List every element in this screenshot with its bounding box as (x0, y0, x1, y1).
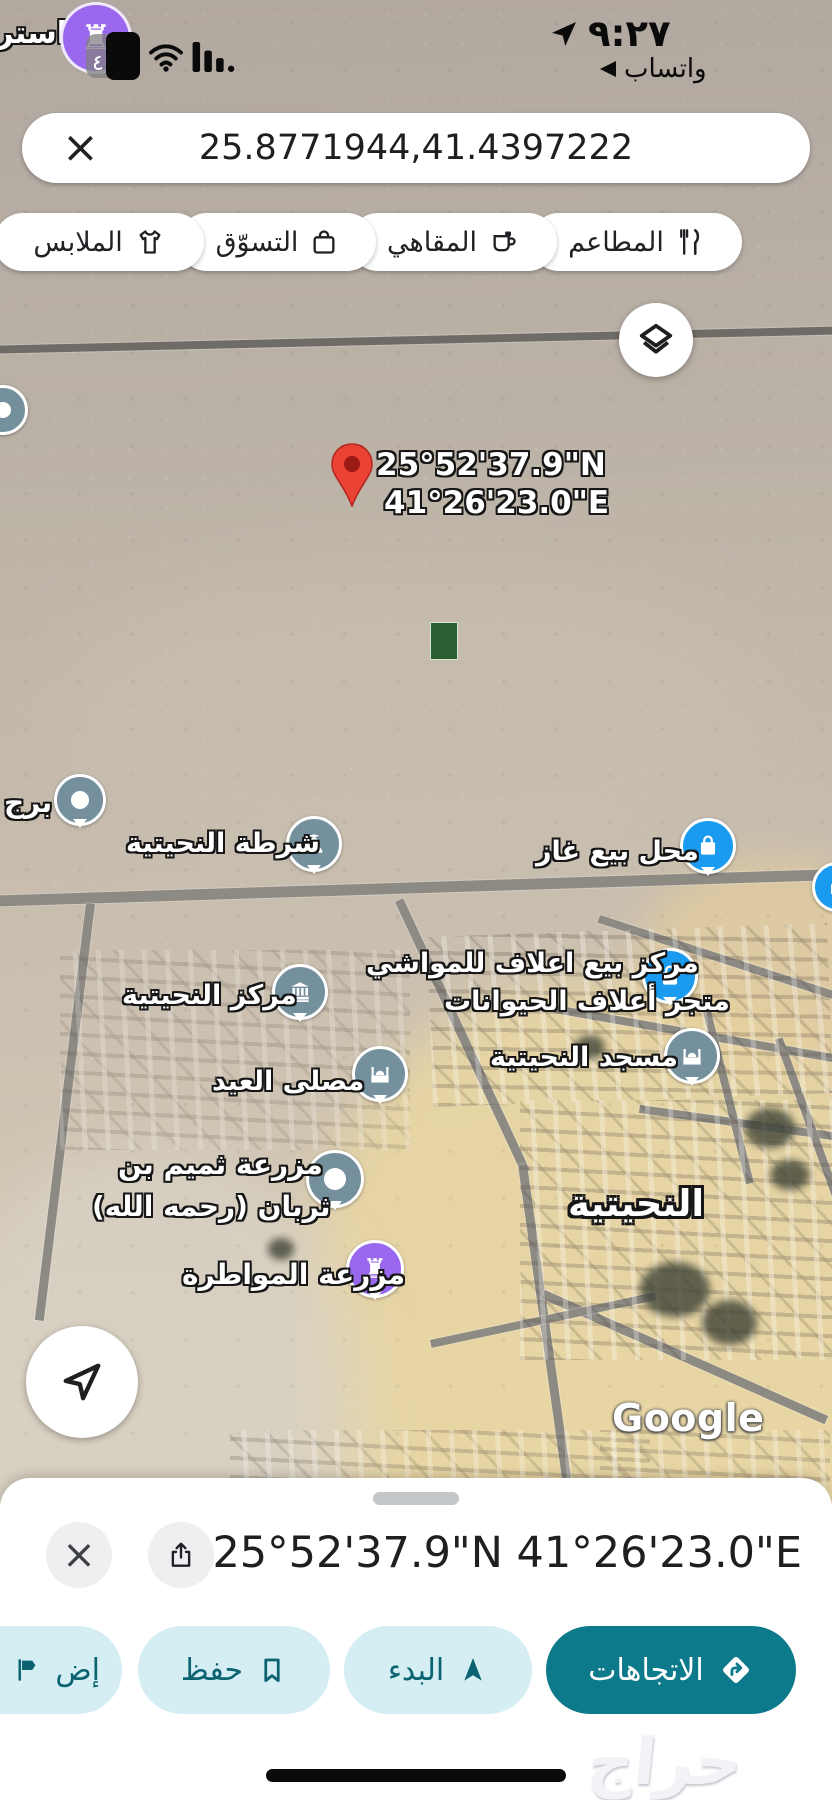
google-maps-screen: استرا ♜ ٤ ٩:٢٧ واتساب × 25.8771944,41.43… (0, 0, 832, 1800)
save-button[interactable]: حفظ (138, 1626, 330, 1714)
close-sheet-button[interactable]: × (46, 1522, 112, 1588)
dropped-pin[interactable] (328, 442, 376, 510)
tower-marker[interactable] (54, 774, 106, 826)
chip-label: التسوّق (216, 227, 299, 258)
my-location-button[interactable] (26, 1326, 138, 1438)
search-bar[interactable]: × 25.8771944,41.4397222 (22, 113, 810, 183)
google-logo: Google (612, 1396, 764, 1440)
restaurants-icon (676, 228, 704, 256)
poi-label-muwatara[interactable]: مزرعة المواطرة (182, 1258, 405, 1291)
cafes-icon (489, 228, 519, 256)
poi-label-eid-musalla[interactable]: مصلى العيد (212, 1066, 364, 1097)
add-label-button[interactable]: إض (0, 1626, 122, 1714)
chip-clothing[interactable]: الملابس (0, 213, 204, 271)
clothing-icon (135, 228, 165, 256)
poi-label-tower[interactable]: برج (4, 786, 52, 819)
map-layers-button[interactable] (619, 303, 693, 377)
share-icon (166, 1540, 196, 1570)
notification-ticker[interactable]: واتساب (600, 54, 707, 84)
bookmark-icon (257, 1655, 287, 1685)
vegetation (268, 1238, 294, 1260)
mosque-icon (679, 1043, 705, 1069)
search-query[interactable]: 25.8771944,41.4397222 (22, 128, 810, 168)
close-icon: × (62, 1535, 96, 1575)
poi-label-town-center[interactable]: مركز النحيتية (122, 980, 297, 1011)
chip-restaurants[interactable]: المطاعم (530, 213, 742, 271)
chip-label: الملابس (33, 227, 122, 258)
vegetation (702, 1300, 757, 1345)
pin-coordinates-line1: 25°52'37.9"N (376, 447, 606, 483)
navigation-outline-icon (56, 1356, 108, 1408)
battery-icon (106, 32, 140, 80)
wifi-icon (148, 42, 184, 72)
status-time: ٩:٢٧ (588, 12, 671, 55)
poi-label-feed-center-1[interactable]: مركز بيع اعلاف للمواشي (366, 948, 699, 979)
highway-road (0, 326, 832, 354)
location-arrow-icon (548, 18, 580, 50)
cellular-signal-icon (192, 42, 236, 72)
pin-coordinates-line2: 41°26'23.0"E (384, 485, 609, 521)
map-label-partial: استرا (0, 16, 67, 51)
poi-label-feed-center-2[interactable]: متجر أعلاف الحيوانات (444, 986, 730, 1017)
badge-count: ٤ (92, 51, 104, 76)
directions-button[interactable]: الاتجاهات (546, 1626, 796, 1714)
layers-icon (637, 321, 675, 359)
town-name-label: النحيتية (568, 1182, 704, 1225)
home-indicator[interactable] (266, 1769, 566, 1782)
add-label-label: إض (55, 1653, 100, 1688)
poi-label-gas-shop[interactable]: محل بيع غاز (536, 836, 699, 867)
flag-icon (11, 1655, 41, 1685)
shop-bag-icon (826, 876, 832, 898)
directions-label: الاتجاهات (588, 1653, 704, 1688)
vegetation (745, 1108, 795, 1148)
navigation-icon (458, 1655, 488, 1685)
green-structure (430, 622, 458, 660)
notification-label: واتساب (624, 54, 707, 84)
save-label: حفظ (181, 1653, 243, 1688)
shopping-icon (310, 228, 338, 256)
share-button[interactable] (148, 1522, 214, 1588)
poi-label-farm-2[interactable]: ثربان (رحمه الله) (92, 1190, 331, 1223)
chip-label: المطاعم (568, 227, 664, 258)
poi-label-farm-1[interactable]: مزرعة ثميم بن (118, 1148, 323, 1181)
start-navigation-button[interactable]: البدء (344, 1626, 532, 1714)
mosque-icon (367, 1061, 393, 1087)
directions-icon (718, 1652, 754, 1688)
start-label: البدء (388, 1653, 444, 1688)
haraj-watermark: حراج (584, 1726, 746, 1800)
chip-cafes[interactable]: المقاهي (349, 213, 557, 271)
vegetation (640, 1262, 710, 1317)
vegetation (770, 1160, 810, 1190)
sheet-coordinates-title: 25°52'37.9"N 41°26'23.0"E (212, 1528, 802, 1578)
status-time-group: ٩:٢٧ (548, 12, 671, 55)
poi-label-mosque[interactable]: مسجد النحيتية (490, 1042, 678, 1073)
chip-label: المقاهي (387, 227, 477, 258)
drag-handle[interactable] (373, 1492, 459, 1505)
close-search-icon[interactable]: × (62, 126, 99, 170)
play-triangle-icon (600, 60, 616, 78)
poi-label-police[interactable]: شرطة النحيتية (126, 828, 320, 859)
chip-shopping[interactable]: التسوّق (178, 213, 376, 271)
